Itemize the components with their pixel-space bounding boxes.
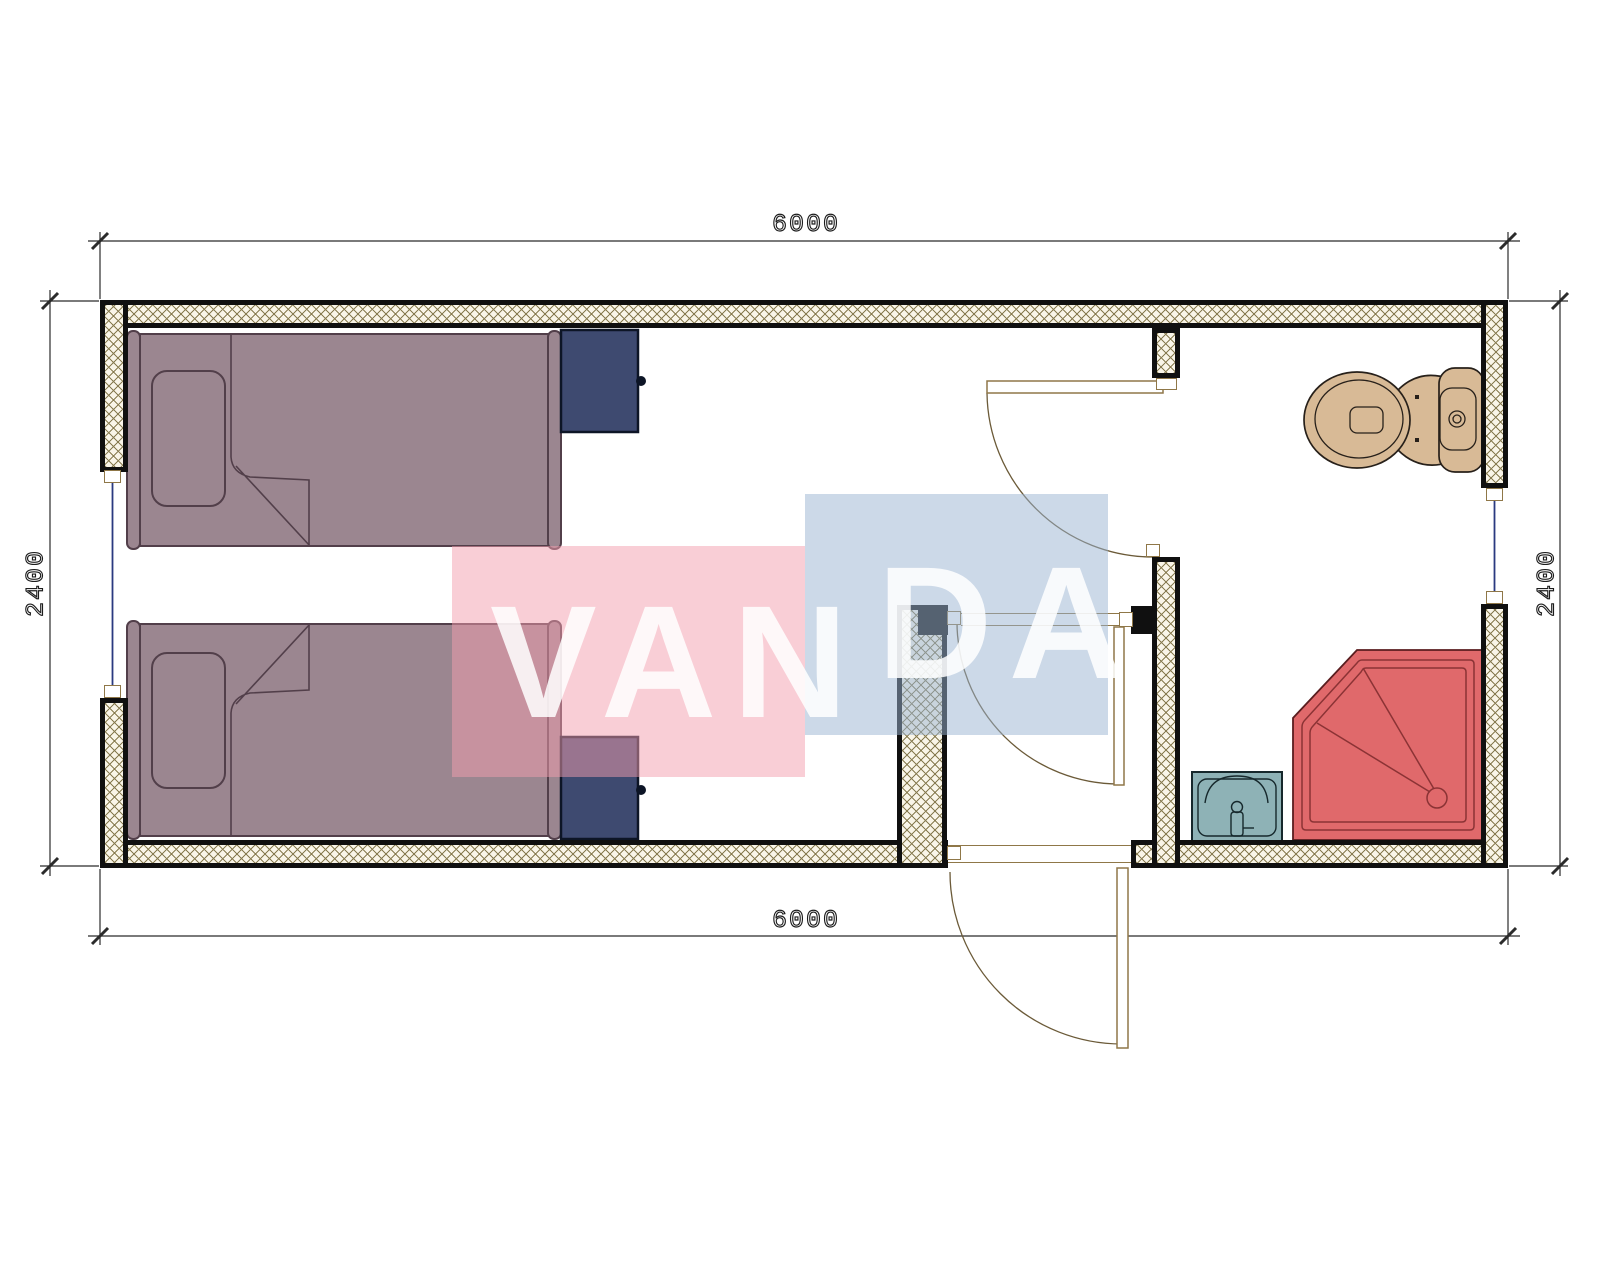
- shower-tray: [1293, 650, 1483, 840]
- jamb-entrance-door-left: [947, 846, 961, 860]
- jamb-window-right-top: [1486, 488, 1503, 501]
- jamb-window-left-bottom: [104, 685, 121, 698]
- wall-right-lower: [1481, 604, 1508, 868]
- watermark-text-right: DA: [877, 543, 1140, 703]
- wash-basin: [1192, 772, 1282, 842]
- wall-bathroom-partition: [1152, 557, 1180, 868]
- wall-top: [100, 300, 1508, 328]
- floor-plan-canvas: 6000 6000 2400 2400 VAN DA: [0, 0, 1600, 1280]
- wall-bottom-right: [1131, 840, 1508, 868]
- nightstand-upper: [561, 330, 646, 432]
- jamb-bathroom-door-bottom: [1146, 544, 1160, 557]
- jamb-window-right-bottom: [1486, 591, 1503, 604]
- entrance-door: [948, 846, 1131, 1049]
- jamb-bathroom-door-top: [1156, 378, 1177, 390]
- wall-bathroom-stub-top: [1152, 328, 1180, 378]
- dimension-label-bottom: 6000: [736, 906, 876, 935]
- toilet: [1304, 368, 1484, 472]
- dimension-label-top: 6000: [736, 210, 876, 239]
- dimension-label-right: 2400: [1533, 549, 1562, 617]
- wall-bottom-left: [100, 840, 948, 868]
- dimension-label-left: 2400: [22, 549, 51, 617]
- jamb-window-left-top: [104, 470, 121, 483]
- watermark-text-left: VAN: [490, 582, 864, 742]
- wall-right-upper: [1481, 300, 1508, 488]
- wall-left-lower: [100, 698, 128, 868]
- wall-left-upper: [100, 300, 128, 472]
- bed-upper: [127, 331, 561, 549]
